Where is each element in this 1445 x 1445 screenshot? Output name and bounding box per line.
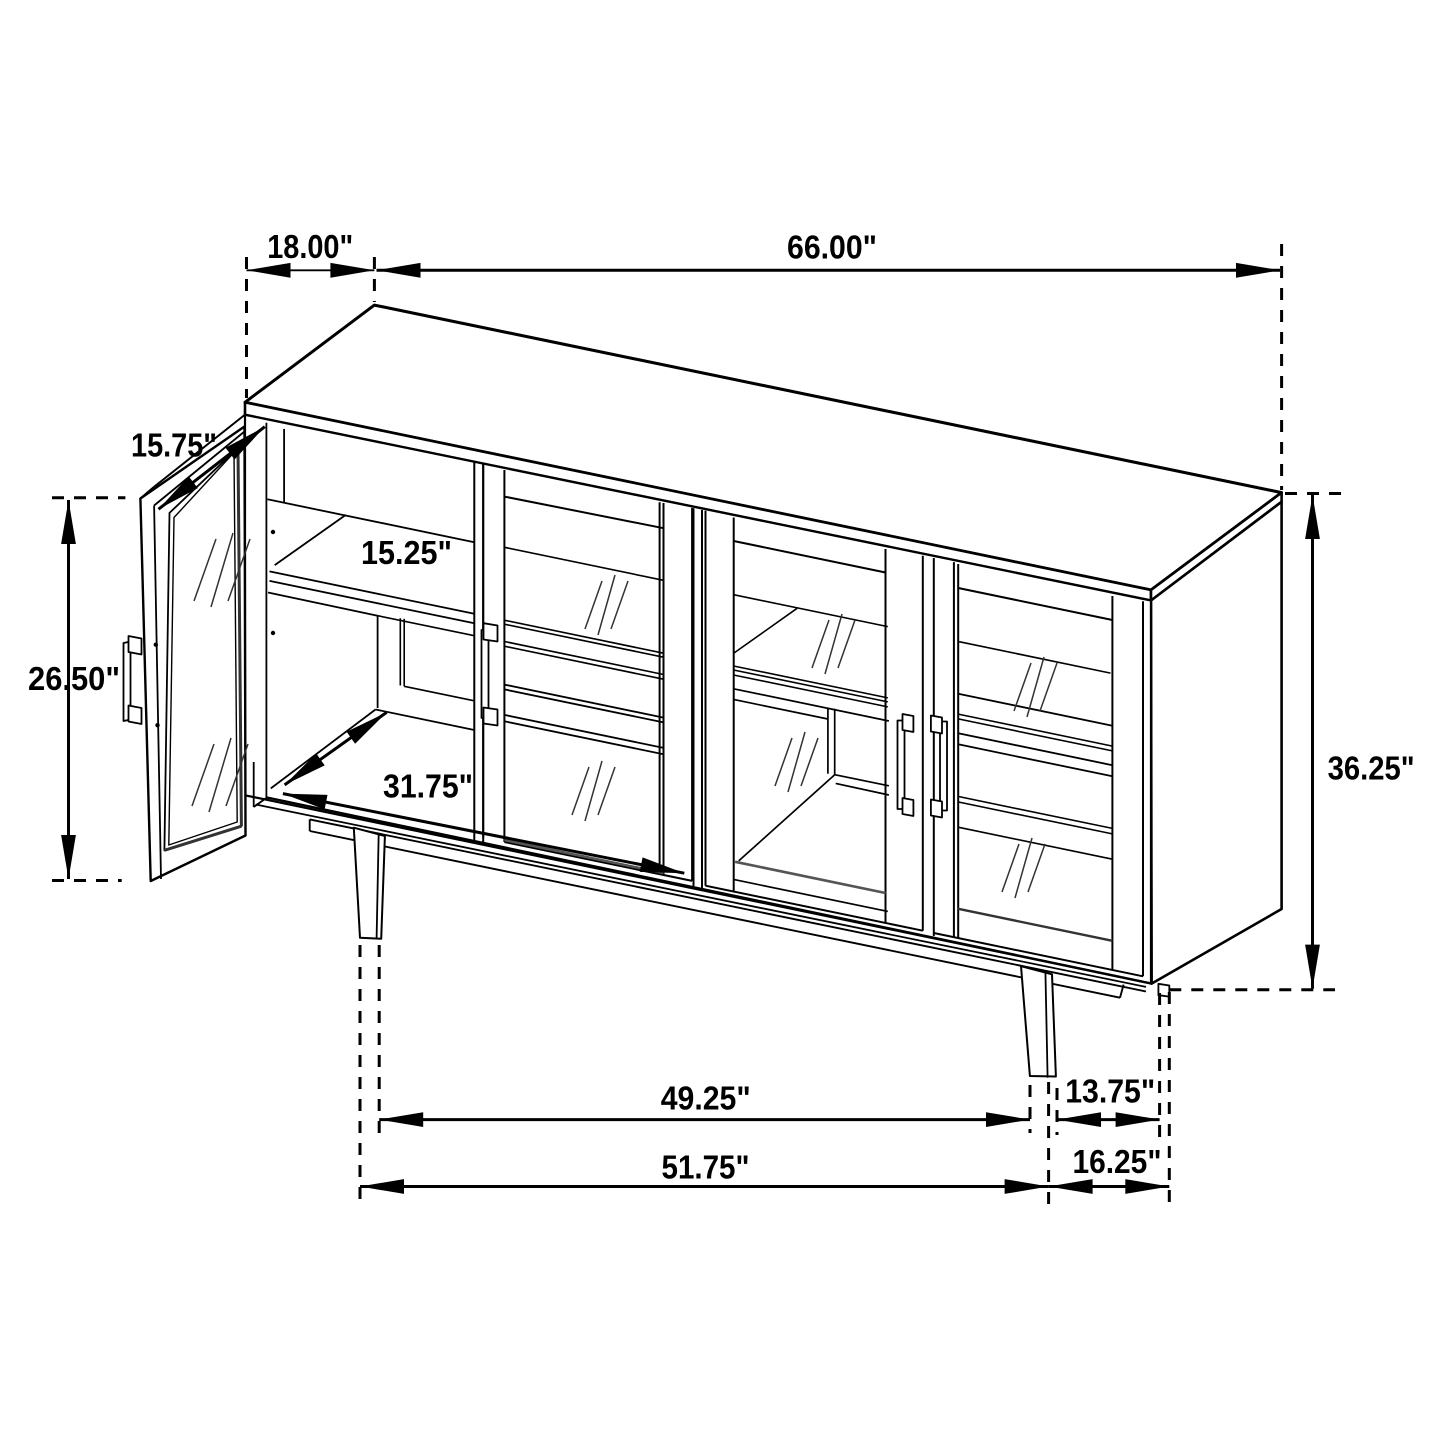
svg-text:36.25": 36.25" [1328, 751, 1415, 788]
svg-text:15.75": 15.75" [131, 428, 217, 465]
svg-text:15.25": 15.25" [361, 535, 452, 572]
svg-text:16.25": 16.25" [1073, 1144, 1162, 1181]
svg-text:51.75": 51.75" [662, 1150, 750, 1187]
svg-text:18.00": 18.00" [267, 229, 353, 266]
svg-text:66.00": 66.00" [787, 230, 877, 267]
svg-text:13.75": 13.75" [1065, 1074, 1155, 1111]
svg-text:26.50": 26.50" [28, 661, 120, 698]
svg-text:49.25": 49.25" [661, 1080, 751, 1117]
svg-text:31.75": 31.75" [383, 769, 473, 806]
